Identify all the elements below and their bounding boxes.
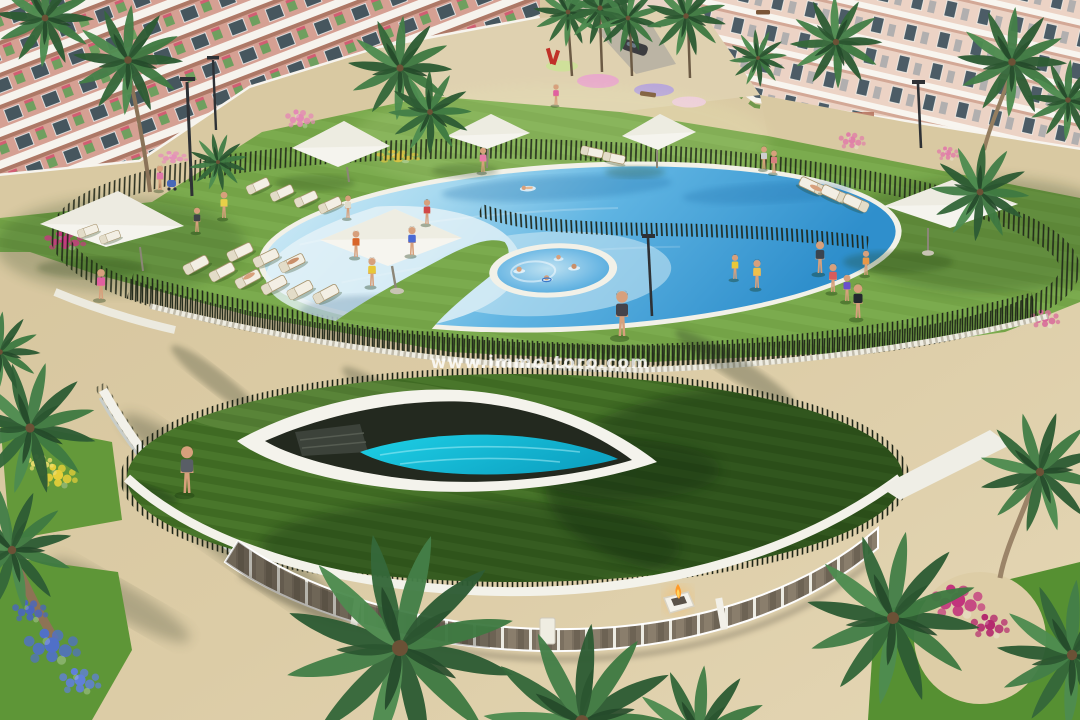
scene-canvas: www.immo-toro.com (0, 0, 1080, 720)
architectural-rendering: www.immo-toro.com (0, 0, 1080, 720)
bench (756, 10, 770, 15)
watermark-text: www.immo-toro.com (431, 353, 650, 373)
